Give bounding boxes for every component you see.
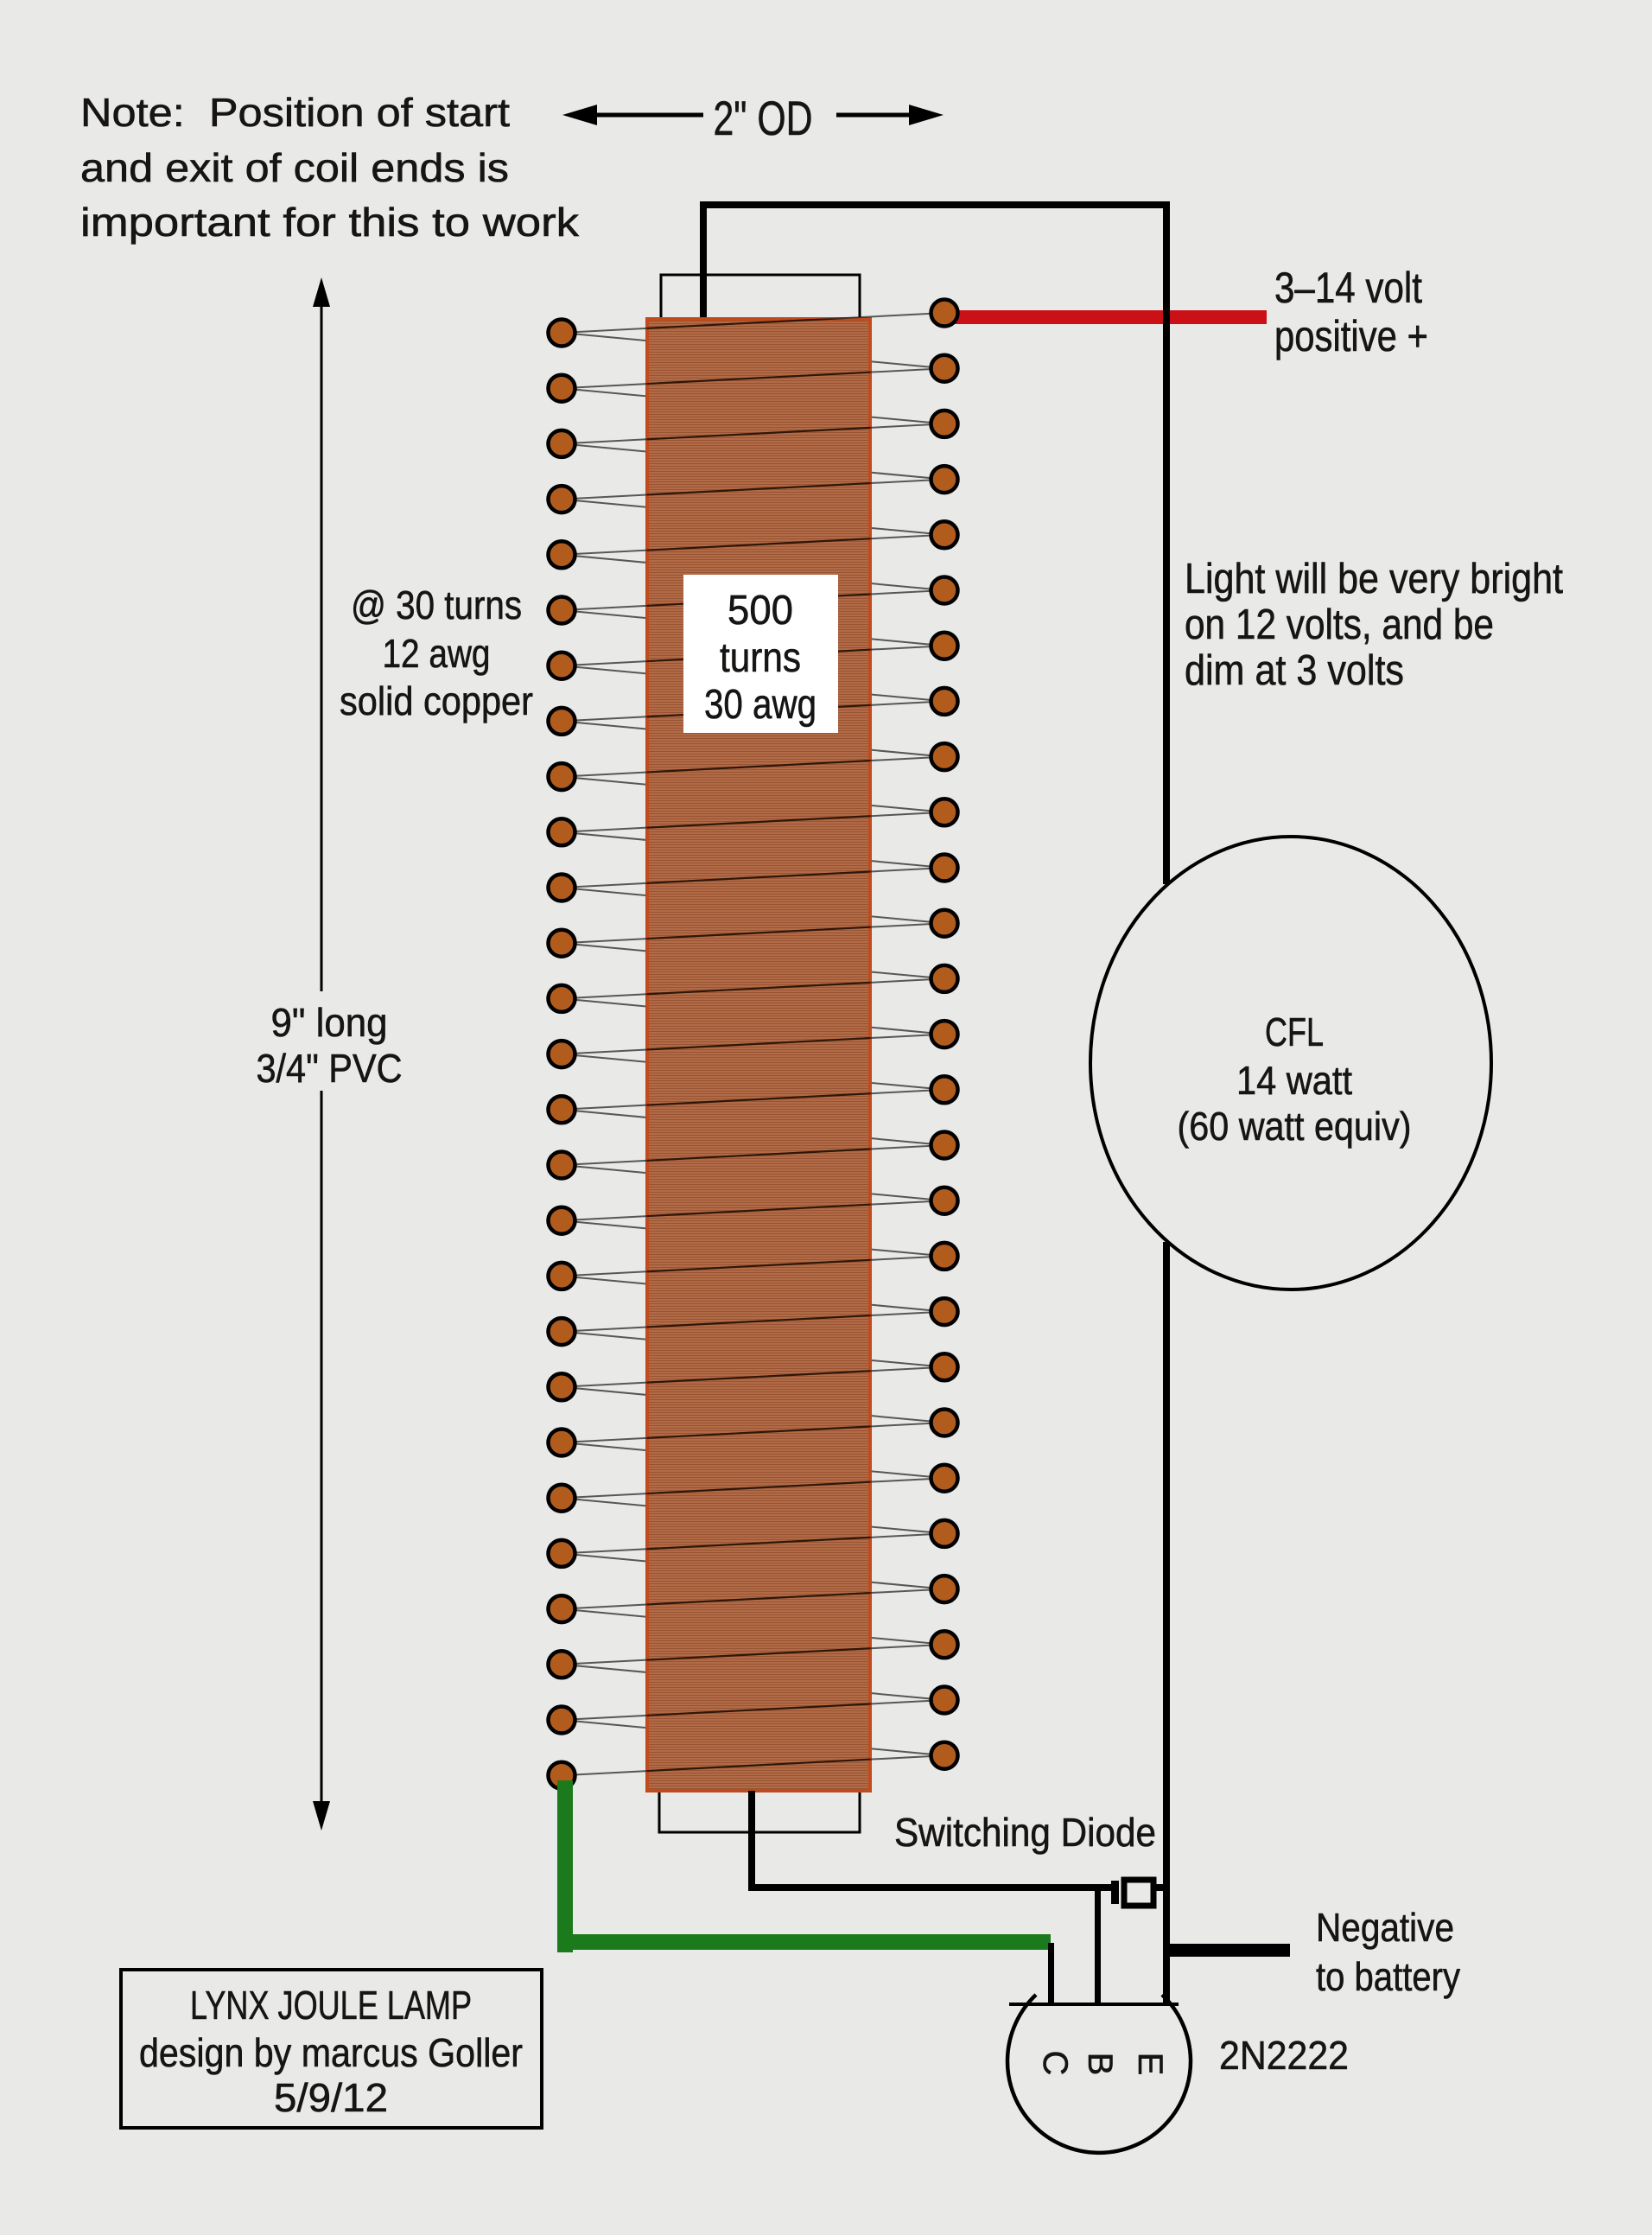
svg-text:LYNX JOULE LAMP: LYNX JOULE LAMP: [190, 1983, 472, 2028]
svg-text:positive +: positive +: [1274, 312, 1428, 360]
svg-text:C: C: [1036, 2051, 1074, 2076]
svg-text:B: B: [1081, 2053, 1119, 2076]
svg-text:Light will be very bright: Light will be very bright: [1185, 556, 1563, 602]
svg-text:E: E: [1131, 2053, 1169, 2076]
svg-text:2" OD: 2" OD: [714, 91, 813, 145]
svg-text:solid copper: solid copper: [340, 678, 533, 723]
svg-text:important for this to work: important for this to work: [80, 200, 580, 245]
svg-text:@ 30 turns: @ 30 turns: [351, 583, 522, 627]
svg-text:turns: turns: [720, 635, 801, 681]
svg-text:on 12 volts, and be: on 12 volts, and be: [1185, 602, 1494, 648]
svg-text:Negative: Negative: [1316, 1905, 1454, 1950]
svg-text:CFL: CFL: [1265, 1009, 1324, 1054]
svg-text:2N2222: 2N2222: [1219, 2033, 1349, 2078]
svg-text:500: 500: [728, 588, 793, 634]
svg-text:5/9/12: 5/9/12: [274, 2075, 388, 2120]
svg-text:12 awg: 12 awg: [383, 631, 491, 676]
svg-text:3–14 volt: 3–14 volt: [1274, 264, 1422, 312]
svg-text:(60 watt equiv): (60 watt equiv): [1178, 1104, 1412, 1149]
svg-text:and exit of coil ends is: and exit of coil ends is: [80, 145, 509, 190]
svg-text:dim at 3 volts: dim at 3 volts: [1185, 647, 1404, 694]
svg-text:to battery: to battery: [1316, 1954, 1460, 1999]
svg-text:30 awg: 30 awg: [704, 682, 816, 728]
svg-text:9" long: 9" long: [271, 1000, 388, 1045]
svg-text:3/4" PVC: 3/4" PVC: [257, 1046, 403, 1091]
svg-text:Note: Position of start: Note: Position of start: [80, 90, 510, 135]
svg-text:design by marcus Goller: design by marcus Goller: [139, 2030, 523, 2075]
svg-text:14 watt: 14 watt: [1236, 1058, 1352, 1103]
svg-text:Switching Diode: Switching Diode: [894, 1810, 1156, 1855]
